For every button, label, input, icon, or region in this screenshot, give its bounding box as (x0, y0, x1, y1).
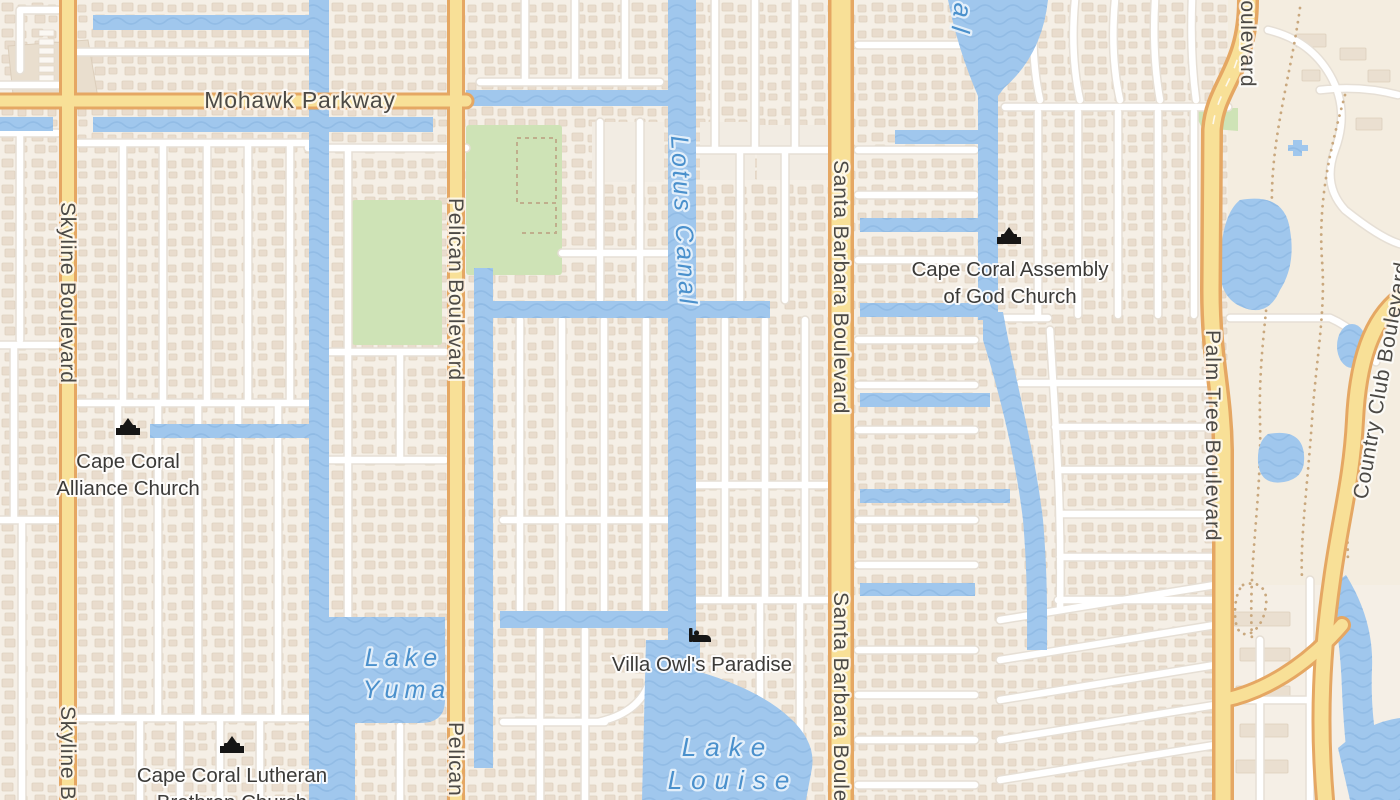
road-label-palm-tree-boulevard-north: Palm Tree Boulevard (1236, 0, 1259, 87)
water-label-lake-yuma-1: Lake (365, 644, 443, 672)
poi-label-assembly-church-1[interactable]: Cape Coral Assembly (911, 258, 1109, 281)
park-west (352, 200, 442, 345)
poi-label-alliance-church-2[interactable]: Alliance Church (56, 477, 200, 500)
road-label-pelican-boulevard: Pelican Boulevard (444, 198, 467, 381)
road-label-pelican-boulevard-south: Pelican Boulevard (444, 722, 467, 800)
water-label-lake-louise-1: Lake (682, 732, 774, 762)
road-label-skyline-boulevard: Skyline Boulevard (56, 202, 79, 384)
poi-label-assembly-church-2[interactable]: of God Church (943, 285, 1076, 308)
road-label-mohawk-parkway: Mohawk Parkway (204, 87, 395, 113)
poi-label-villa-owls-paradise[interactable]: Villa Owl's Paradise (612, 653, 792, 676)
water-label-lake-louise-2: Louise (668, 765, 799, 795)
road-label-skyline-boulevard-south: Skyline Boulevard (56, 706, 79, 800)
poi-label-alliance-church-1[interactable]: Cape Coral (76, 450, 180, 473)
water-label-lake-yuma-2: Yuma (363, 676, 451, 704)
map-canvas[interactable]: Mohawk Parkway Skyline Boulevard Skyline… (0, 0, 1400, 800)
park-east (466, 125, 562, 275)
map-viewport[interactable]: Mohawk Parkway Skyline Boulevard Skyline… (0, 0, 1400, 800)
road-label-palm-tree-boulevard: Palm Tree Boulevard (1201, 330, 1224, 541)
poi-label-lutheran-church-2[interactable]: Brethren Church (157, 791, 307, 800)
road-label-santa-barbara-boulevard-south: Santa Barbara Boulevard (829, 592, 852, 800)
poi-label-lutheran-church-1[interactable]: Cape Coral Lutheran (137, 764, 327, 787)
road-label-santa-barbara-boulevard: Santa Barbara Boulevard (829, 160, 852, 414)
